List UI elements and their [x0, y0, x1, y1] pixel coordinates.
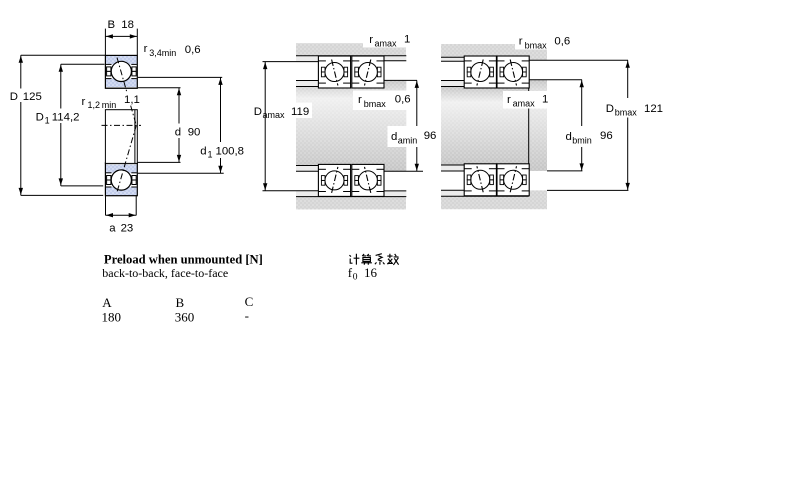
svg-text:119: 119	[291, 106, 309, 118]
svg-text:1: 1	[542, 94, 548, 106]
svg-text:bmax: bmax	[525, 40, 548, 50]
svg-text:amax: amax	[375, 39, 398, 49]
svg-text:1,1: 1,1	[124, 94, 140, 106]
svg-text:0,6: 0,6	[554, 36, 570, 48]
svg-text:360: 360	[175, 309, 195, 324]
svg-text:bmax: bmax	[615, 107, 638, 117]
svg-text:180: 180	[102, 309, 122, 324]
svg-text:0,6: 0,6	[395, 94, 411, 106]
svg-text:C: C	[245, 294, 254, 309]
svg-text:r: r	[82, 96, 86, 108]
svg-text:125: 125	[23, 91, 42, 103]
svg-text:D: D	[36, 111, 44, 123]
svg-text:d: d	[200, 146, 206, 158]
svg-text:114,2: 114,2	[52, 111, 80, 123]
svg-text:90: 90	[188, 127, 201, 139]
svg-text:B: B	[176, 295, 185, 310]
svg-text:min: min	[102, 100, 117, 110]
svg-text:r: r	[144, 43, 148, 55]
svg-text:bmax: bmax	[364, 99, 387, 109]
svg-text:bmin: bmin	[572, 136, 592, 146]
svg-text:d: d	[566, 131, 572, 143]
svg-text:-: -	[245, 308, 249, 323]
svg-text:Preload when unmounted [N]: Preload when unmounted [N]	[104, 253, 263, 267]
svg-text:18: 18	[121, 19, 134, 31]
svg-text:A: A	[102, 295, 112, 310]
svg-text:r: r	[358, 94, 362, 106]
svg-text:96: 96	[424, 130, 437, 142]
svg-text:a: a	[109, 223, 116, 235]
svg-text:back-to-back, face-to-face: back-to-back, face-to-face	[102, 266, 228, 280]
svg-text:1: 1	[45, 115, 50, 125]
svg-text:1: 1	[404, 34, 410, 46]
svg-text:0: 0	[353, 273, 358, 283]
svg-text:amin: amin	[398, 136, 418, 146]
svg-text:amax: amax	[263, 110, 286, 120]
svg-text:d: d	[391, 131, 397, 143]
svg-text:16: 16	[364, 265, 378, 280]
svg-text:D: D	[10, 91, 18, 103]
svg-text:96: 96	[600, 130, 613, 142]
svg-text:121: 121	[644, 103, 663, 115]
svg-text:1: 1	[208, 150, 213, 160]
svg-text:r: r	[519, 36, 523, 48]
svg-text:0,6: 0,6	[185, 44, 201, 56]
svg-text:r: r	[507, 94, 511, 106]
svg-text:D: D	[606, 103, 614, 115]
svg-text:23: 23	[121, 223, 134, 235]
svg-text:r: r	[369, 34, 373, 46]
svg-text:amax: amax	[513, 99, 536, 109]
svg-text:B: B	[108, 19, 116, 31]
svg-text:100,8: 100,8	[216, 146, 245, 158]
svg-text:3,4min: 3,4min	[149, 48, 176, 58]
svg-text:1,2: 1,2	[88, 100, 101, 110]
svg-text:d: d	[175, 127, 181, 139]
svg-text:D: D	[254, 106, 262, 118]
